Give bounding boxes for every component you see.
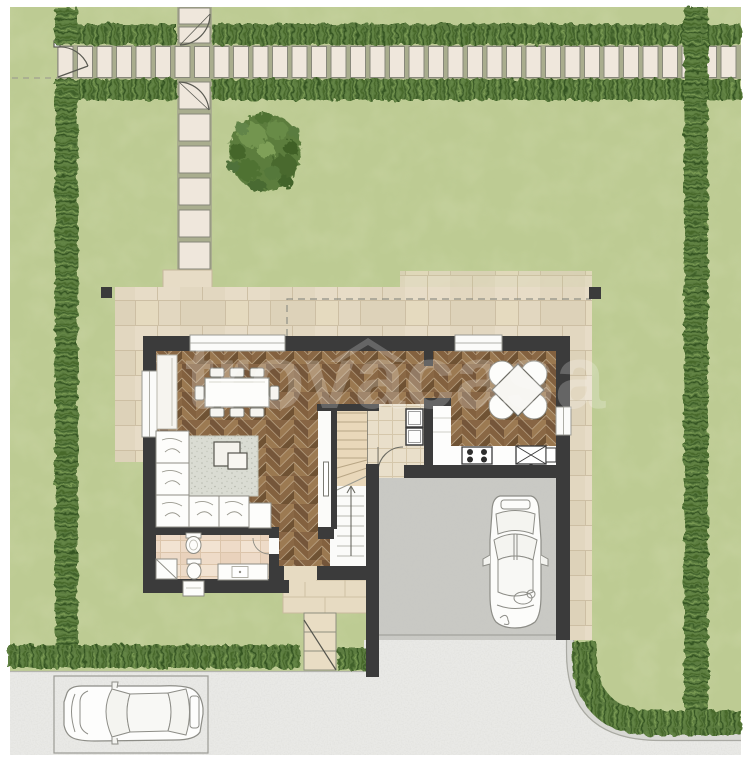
svg-text:trovacasa: trovacasa <box>185 328 606 428</box>
